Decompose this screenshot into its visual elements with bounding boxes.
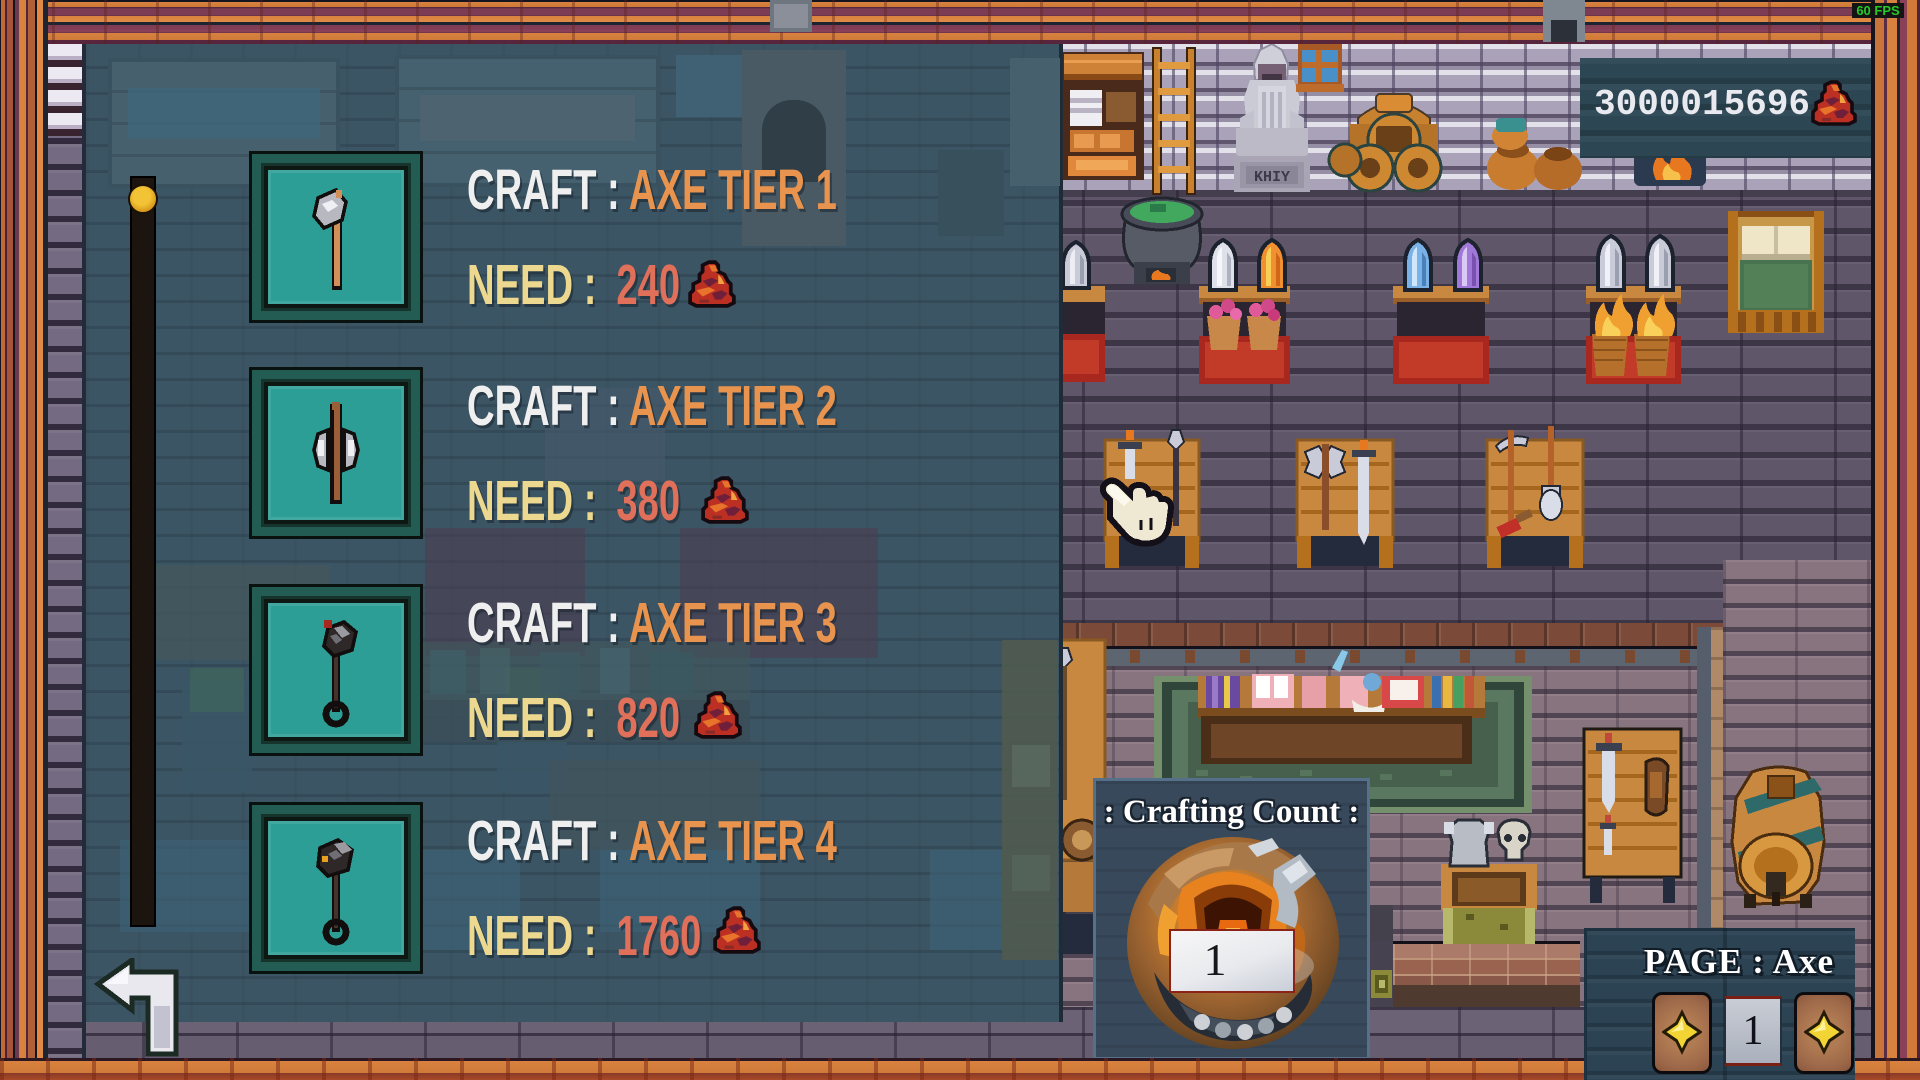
svg-text:KHIY: KHIY — [1254, 169, 1290, 186]
